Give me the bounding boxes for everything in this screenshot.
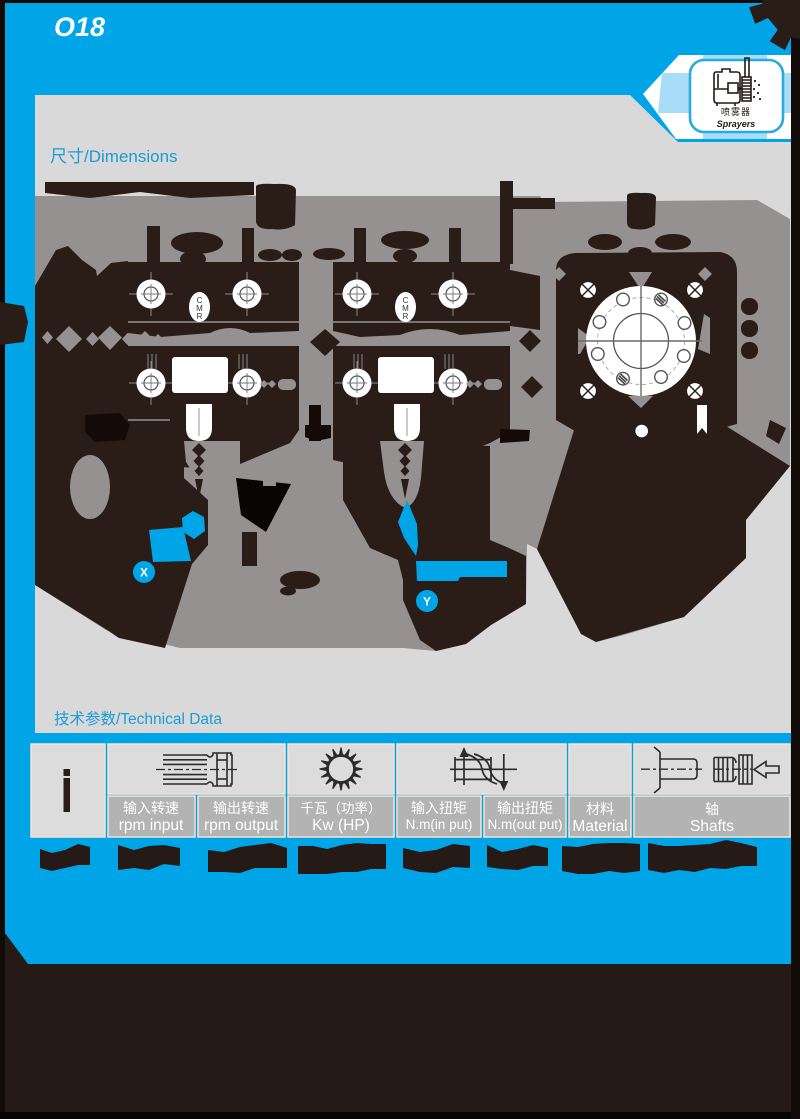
svg-text:尺寸/Dimensions: 尺寸/Dimensions bbox=[50, 147, 178, 166]
svg-text:rpm input: rpm input bbox=[119, 817, 184, 834]
svg-text:输入扭矩: 输入扭矩 bbox=[411, 800, 467, 816]
svg-text:材料: 材料 bbox=[586, 801, 614, 817]
svg-text:Shafts: Shafts bbox=[690, 818, 734, 835]
svg-text:N.m(in put): N.m(in put) bbox=[406, 817, 473, 832]
svg-text:喷雾器: 喷雾器 bbox=[721, 107, 751, 117]
svg-text:Y: Y bbox=[423, 595, 431, 609]
svg-text:Material: Material bbox=[572, 818, 627, 835]
svg-text:O18: O18 bbox=[54, 12, 105, 42]
svg-text:千瓦（功率）: 千瓦（功率） bbox=[301, 800, 382, 816]
svg-text:X: X bbox=[140, 566, 148, 580]
svg-text:N.m(out put): N.m(out put) bbox=[487, 817, 562, 832]
svg-text:输出扭矩: 输出扭矩 bbox=[497, 800, 553, 816]
svg-text:Kw (HP): Kw (HP) bbox=[312, 817, 370, 834]
svg-text:输出转速: 输出转速 bbox=[213, 800, 269, 816]
svg-text:Sprayers: Sprayers bbox=[717, 119, 756, 129]
svg-text:轴: 轴 bbox=[705, 801, 719, 817]
svg-text:R: R bbox=[403, 312, 409, 321]
svg-text:R: R bbox=[197, 312, 203, 321]
svg-text:输入转速: 输入转速 bbox=[123, 800, 179, 816]
svg-text:rpm output: rpm output bbox=[204, 817, 279, 834]
svg-text:技术参数/Technical Data: 技术参数/Technical Data bbox=[54, 710, 222, 728]
